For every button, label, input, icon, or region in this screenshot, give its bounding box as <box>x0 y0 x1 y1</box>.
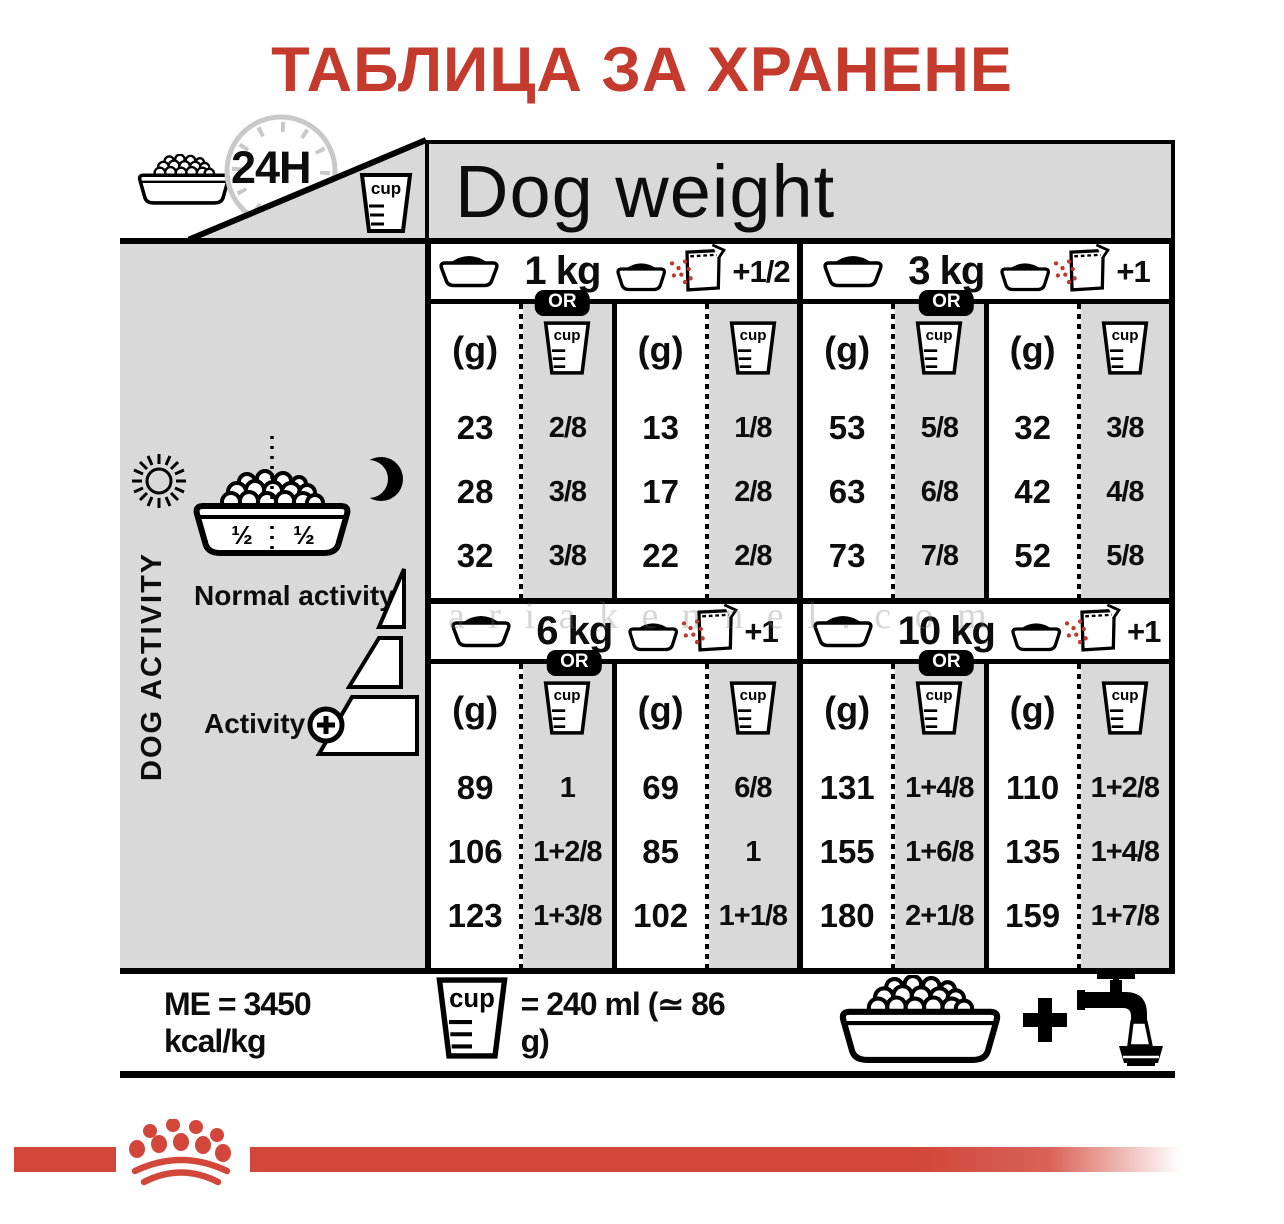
column-pair: (g) 13 17 22 <box>617 304 798 598</box>
column-pair: (g) 131 155 180 <box>803 664 984 968</box>
measuring-cup-icon: cup <box>543 680 591 741</box>
grams-column: (g) 69 85 102 <box>617 664 705 968</box>
cup-value: 1 <box>523 756 611 820</box>
grams-value: 106 <box>431 820 519 884</box>
grams-unit-label: (g) <box>638 329 684 371</box>
grams-value: 89 <box>431 756 519 820</box>
svg-text:cup: cup <box>739 687 766 704</box>
activity-level-3-icon <box>288 694 420 763</box>
grams-value: 73 <box>803 524 891 588</box>
grams-value: 32 <box>431 524 519 588</box>
section-1kg: 1 kg OR <box>431 244 797 598</box>
grams-unit-label: (g) <box>1010 689 1056 731</box>
svg-text:cup: cup <box>926 327 953 344</box>
column-pair: (g) 69 85 102 <box>617 664 798 968</box>
cups-column: cup 1/8 2/8 2/8 <box>709 304 797 598</box>
sun-icon <box>130 452 188 515</box>
food-bowl-icon <box>812 609 874 654</box>
cup-value: 2/8 <box>523 396 611 460</box>
measuring-cup-icon: cup <box>729 680 777 741</box>
grams-value: 52 <box>989 524 1077 588</box>
dog-activity-label: DOG ACTIVITY <box>136 566 169 781</box>
svg-text:½: ½ <box>293 520 315 550</box>
grams-value: 22 <box>617 524 705 588</box>
bowl-and-pouch-icon <box>628 602 740 661</box>
cup-value: 1+3/8 <box>523 884 611 948</box>
feeding-table: 1 kg OR <box>425 238 1175 968</box>
section-1kg-body: (g) 23 28 32 <box>431 304 797 598</box>
food-bowl-icon <box>822 249 884 294</box>
column-pair: (g) 89 106 123 <box>431 664 612 968</box>
grams-value: 135 <box>989 820 1077 884</box>
svg-text:cup: cup <box>1111 687 1138 704</box>
cup-value: 6/8 <box>709 756 797 820</box>
grams-value: 17 <box>617 460 705 524</box>
weight-label: 3 kg <box>908 249 984 293</box>
section-6kg-header: 6 kg OR <box>431 604 797 664</box>
section-3kg-header: 3 kg OR <box>803 244 1169 304</box>
column-pair: (g) 110 135 159 <box>989 664 1170 968</box>
water-tap-icon <box>1075 968 1175 1071</box>
measuring-cup-icon: cup <box>1101 680 1149 741</box>
column-pair: (g) 32 42 52 <box>989 304 1170 598</box>
measuring-cup-icon: cup <box>729 320 777 381</box>
cup-value: 3/8 <box>1081 396 1169 460</box>
plus-icon <box>1023 998 1067 1047</box>
svg-text:cup: cup <box>739 327 766 344</box>
grams-value: 110 <box>989 756 1077 820</box>
weight-label: 6 kg <box>536 609 612 653</box>
cups-column: cup 3/8 4/8 5/8 <box>1081 304 1169 598</box>
or-badge: OR <box>547 650 602 676</box>
grams-value: 28 <box>431 460 519 524</box>
activity-level-2-icon <box>346 636 404 695</box>
grams-value: 159 <box>989 884 1077 948</box>
grams-unit-label: (g) <box>824 689 870 731</box>
cup-value: 1+2/8 <box>523 820 611 884</box>
cup-volume-label: = 240 ml (≃ 86 g) <box>521 985 735 1060</box>
cups-column: cup 5/8 6/8 7/8 <box>895 304 983 598</box>
page-title: ТАБЛИЦА ЗА ХРАНЕНЕ <box>0 34 1284 106</box>
cup-value: 1+4/8 <box>1081 820 1169 884</box>
cups-column: cup 1+2/8 1+4/8 1+7/8 <box>1081 664 1169 968</box>
food-bowl-icon <box>450 609 512 654</box>
activity-level-1-icon <box>376 566 408 635</box>
grams-value: 63 <box>803 460 891 524</box>
grams-value: 155 <box>803 820 891 884</box>
cup-value: 1+1/8 <box>709 884 797 948</box>
cups-column: cup 2/8 3/8 3/8 <box>523 304 611 598</box>
cup-value: 2/8 <box>709 460 797 524</box>
grams-value: 23 <box>431 396 519 460</box>
svg-text:cup: cup <box>926 687 953 704</box>
cup-value: 1/8 <box>709 396 797 460</box>
cup-value: 3/8 <box>523 524 611 588</box>
cup-value: 1+6/8 <box>895 820 983 884</box>
royal-canin-crown-logo <box>116 1119 248 1196</box>
section-3kg: 3 kg OR <box>803 244 1169 598</box>
grams-value: 32 <box>989 396 1077 460</box>
bowl-and-pouch-icon <box>1000 242 1112 301</box>
cup-value: 1+7/8 <box>1081 884 1169 948</box>
footer-info-strip: ME = 3450 kcal/kg cup = 240 ml (≃ 86 g) <box>120 968 1175 1078</box>
section-1kg-header: 1 kg OR <box>431 244 797 304</box>
measuring-cup-icon: cup <box>358 172 414 239</box>
cup-value: 7/8 <box>895 524 983 588</box>
measuring-cup-icon: cup <box>1101 320 1149 381</box>
bowl-and-pouch-icon <box>1011 602 1123 661</box>
extra-portion-label: +1 <box>1127 614 1160 650</box>
cup-value: 6/8 <box>895 460 983 524</box>
column-pair: (g) 53 63 73 <box>803 304 984 598</box>
grams-column: (g) 131 155 180 <box>803 664 891 968</box>
grams-unit-label: (g) <box>824 329 870 371</box>
weight-or-wrap: 6 kg OR <box>536 609 612 654</box>
measuring-cup-icon: cup <box>915 320 963 381</box>
cup-value: 5/8 <box>1081 524 1169 588</box>
section-10kg-header: 10 kg OR <box>803 604 1169 664</box>
kibble-bowl-icon <box>831 975 1009 1070</box>
grams-value: 102 <box>617 884 705 948</box>
normal-activity-label: Normal activity <box>194 580 395 612</box>
grams-value: 85 <box>617 820 705 884</box>
extra-portion-label: +1 <box>1116 254 1149 290</box>
measuring-cup-icon: cup <box>433 976 511 1065</box>
cup-value: 4/8 <box>1081 460 1169 524</box>
grams-column: (g) 23 28 32 <box>431 304 519 598</box>
cup-value: 2+1/8 <box>895 884 983 948</box>
grams-unit-label: (g) <box>452 329 498 371</box>
grams-unit-label: (g) <box>1010 329 1056 371</box>
grams-column: (g) 53 63 73 <box>803 304 891 598</box>
section-10kg: 10 kg OR <box>803 604 1169 968</box>
measuring-cup-icon: cup <box>915 680 963 741</box>
dog-weight-label: Dog weight <box>455 149 835 234</box>
grams-value: 69 <box>617 756 705 820</box>
weight-or-wrap: 3 kg OR <box>908 249 984 294</box>
grams-column: (g) 32 42 52 <box>989 304 1077 598</box>
cup-value: 1 <box>709 820 797 884</box>
svg-text:cup: cup <box>554 687 581 704</box>
section-3kg-body: (g) 53 63 73 <box>803 304 1169 598</box>
column-pair: (g) 23 28 32 <box>431 304 612 598</box>
measuring-cup-icon: cup <box>543 320 591 381</box>
food-bowl-icon <box>438 249 500 294</box>
grams-value: 131 <box>803 756 891 820</box>
bowl-and-pouch-icon <box>616 242 728 301</box>
section-10kg-body: (g) 131 155 180 <box>803 664 1169 968</box>
or-badge: OR <box>535 290 590 316</box>
weight-label: 10 kg <box>898 609 995 653</box>
brand-band-left <box>14 1147 116 1172</box>
extra-portion-label: +1 <box>744 614 777 650</box>
svg-text:cup: cup <box>554 327 581 344</box>
metabolizable-energy-label: ME = 3450 kcal/kg <box>164 986 393 1060</box>
svg-text:cup: cup <box>371 179 401 198</box>
cups-column: cup 6/8 1 1+1/8 <box>709 664 797 968</box>
grams-value: 13 <box>617 396 705 460</box>
weight-label: 1 kg <box>524 249 600 293</box>
grams-value: 180 <box>803 884 891 948</box>
cup-value: 3/8 <box>523 460 611 524</box>
section-6kg-body: (g) 89 106 123 <box>431 664 797 968</box>
or-badge: OR <box>919 650 974 676</box>
grams-value: 42 <box>989 460 1077 524</box>
cups-column: cup 1 1+2/8 1+3/8 <box>523 664 611 968</box>
extra-portion-label: +1/2 <box>732 254 789 290</box>
grams-value: 53 <box>803 396 891 460</box>
weight-or-wrap: 1 kg OR <box>524 249 600 294</box>
cups-column: cup 1+4/8 1+6/8 2+1/8 <box>895 664 983 968</box>
grams-column: (g) 13 17 22 <box>617 304 705 598</box>
grams-column: (g) 89 106 123 <box>431 664 519 968</box>
half-portions-bowl-icon: ½ ½ <box>184 436 360 573</box>
grams-value: 123 <box>431 884 519 948</box>
weight-or-wrap: 10 kg OR <box>898 609 995 654</box>
svg-text:cup: cup <box>1111 327 1138 344</box>
grams-column: (g) 110 135 159 <box>989 664 1077 968</box>
cup-value: 5/8 <box>895 396 983 460</box>
feeding-table-page: ТАБЛИЦА ЗА ХРАНЕНЕ 24H <box>0 0 1284 1224</box>
cup-value: 1+4/8 <box>895 756 983 820</box>
svg-text:cup: cup <box>449 985 495 1013</box>
dog-weight-header: Dog weight <box>425 140 1175 238</box>
svg-text:½: ½ <box>231 520 253 550</box>
section-6kg: 6 kg OR <box>431 604 797 968</box>
grams-unit-label: (g) <box>638 689 684 731</box>
moon-icon <box>358 454 404 509</box>
cup-value: 1+2/8 <box>1081 756 1169 820</box>
dog-activity-sidebar: ½ ½ DOG ACTIVITY Normal activity Activit… <box>120 238 425 968</box>
cup-value: 2/8 <box>709 524 797 588</box>
grams-unit-label: (g) <box>452 689 498 731</box>
or-badge: OR <box>919 290 974 316</box>
brand-band-right <box>250 1147 1180 1172</box>
